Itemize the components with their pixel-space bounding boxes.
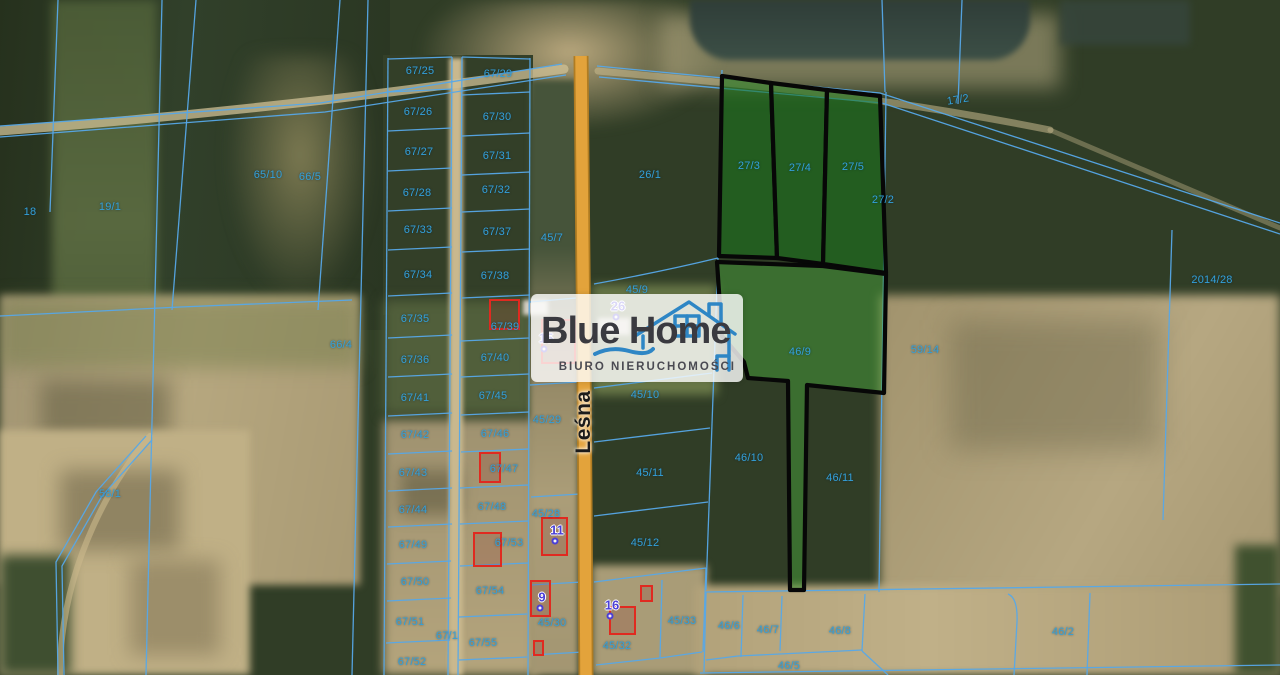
house-marker-dot — [552, 538, 559, 545]
parcel-label-67-35: 67/35 — [401, 313, 430, 325]
parcel-label-46-9: 46/9 — [789, 346, 811, 358]
parcel-label-67-30: 67/30 — [483, 111, 512, 123]
parcel-label-67-27: 67/27 — [405, 146, 434, 158]
parcel-label-59-14: 59/14 — [911, 344, 940, 356]
parcel-label-67-50: 67/50 — [401, 576, 430, 588]
parcel-label-67-40: 67/40 — [481, 352, 510, 364]
parcel-label-67-43: 67/43 — [399, 467, 428, 479]
parcel-label-67-28: 67/28 — [403, 187, 432, 199]
parcel-label-67-48: 67/48 — [478, 501, 507, 513]
parcel-label-67-36: 67/36 — [401, 354, 430, 366]
parcel-label-27-4: 27/4 — [789, 162, 811, 174]
parcel-label-46-2: 46/2 — [1052, 626, 1074, 638]
parcel-label-45-33: 45/33 — [668, 615, 697, 627]
house-outline — [640, 585, 653, 602]
parcel-label-67-31: 67/31 — [483, 150, 512, 162]
parcel-label-2014-28: 2014/28 — [1191, 274, 1232, 286]
map-canvas: 261511916 1819/165/1066/566/458/167/2567… — [0, 0, 1280, 675]
logo-swoosh-icon — [593, 344, 655, 358]
parcel-label-67-38: 67/38 — [481, 270, 510, 282]
parcel-label-67-41: 67/41 — [401, 392, 430, 404]
parcel-label-67-53: 67/53 — [495, 537, 524, 549]
parcel-label-45-30: 45/30 — [538, 617, 567, 629]
parcel-label-67-47: 67/47 — [490, 463, 519, 475]
parcel-label-27-3: 27/3 — [738, 160, 760, 172]
parcel-label-45-29: 45/29 — [533, 414, 562, 426]
parcel-label-45-28: 45/28 — [532, 508, 561, 520]
parcel-label-67-54: 67/54 — [476, 585, 505, 597]
parcel-label-58-1: 58/1 — [99, 488, 121, 500]
parcel-label-67-34: 67/34 — [404, 269, 433, 281]
house-marker-dot — [607, 613, 614, 620]
parcel-label-67-46: 67/46 — [481, 428, 510, 440]
house-outline — [533, 640, 544, 656]
parcel-label-46-8: 46/8 — [829, 625, 851, 637]
parcel-label-18: 18 — [24, 206, 37, 218]
parcel-label-67-29: 67/29 — [484, 68, 513, 80]
parcel-label-67-51: 67/51 — [396, 616, 425, 628]
parcel-label-67-37: 67/37 — [483, 226, 512, 238]
parcel-label-46-5: 46/5 — [778, 660, 800, 672]
parcel-label-67-26: 67/26 — [404, 106, 433, 118]
parcel-label-27-2: 27/2 — [872, 194, 894, 206]
house-marker-11[interactable]: 11 — [550, 523, 564, 538]
parcel-label-45-11: 45/11 — [636, 467, 664, 479]
logo-subtitle: BIURO NIERUCHOMOŚCI — [559, 361, 736, 373]
parcel-label-67-32: 67/32 — [482, 184, 511, 196]
parcel-label-66-5: 66/5 — [299, 171, 321, 183]
parcel-label-67-45: 67/45 — [479, 390, 508, 402]
parcel-label-67-52: 67/52 — [398, 656, 427, 668]
parcel-label-66-4: 66/4 — [330, 339, 352, 351]
parcel-label-46-6: 46/6 — [718, 620, 740, 632]
parcel-label-45-12: 45/12 — [631, 537, 660, 549]
parcel-label-67-39: 67/39 — [491, 321, 520, 333]
parcel-label-67-42: 67/42 — [401, 429, 430, 441]
parcel-label-67-1: 67/1 — [436, 630, 458, 642]
house-marker-16[interactable]: 16 — [605, 598, 619, 613]
road-name-label: Leśna — [572, 390, 596, 453]
parcel-label-67-49: 67/49 — [399, 539, 428, 551]
parcel-label-67-44: 67/44 — [399, 504, 428, 516]
parcel-label-45-32: 45/32 — [603, 640, 632, 652]
house-marker-9[interactable]: 9 — [538, 590, 545, 605]
parcel-label-46-10: 46/10 — [735, 452, 764, 464]
house-marker-dot — [537, 605, 544, 612]
parcel-label-67-25: 67/25 — [406, 65, 435, 77]
parcel-label-26-1: 26/1 — [639, 169, 661, 181]
parcel-label-65-10: 65/10 — [254, 169, 283, 181]
parcel-label-45-10: 45/10 — [631, 389, 660, 401]
watermark-logo: Blue Home BIURO NIERUCHOMOŚCI — [531, 294, 743, 382]
parcel-label-46-7: 46/7 — [757, 624, 779, 636]
parcel-label-27-5: 27/5 — [842, 161, 864, 173]
parcel-label-19-1: 19/1 — [99, 201, 121, 213]
parcel-label-46-11: 46/11 — [826, 472, 854, 484]
parcel-label-67-55: 67/55 — [469, 637, 498, 649]
parcel-label-67-33: 67/33 — [404, 224, 433, 236]
parcel-label-45-7: 45/7 — [541, 232, 563, 244]
